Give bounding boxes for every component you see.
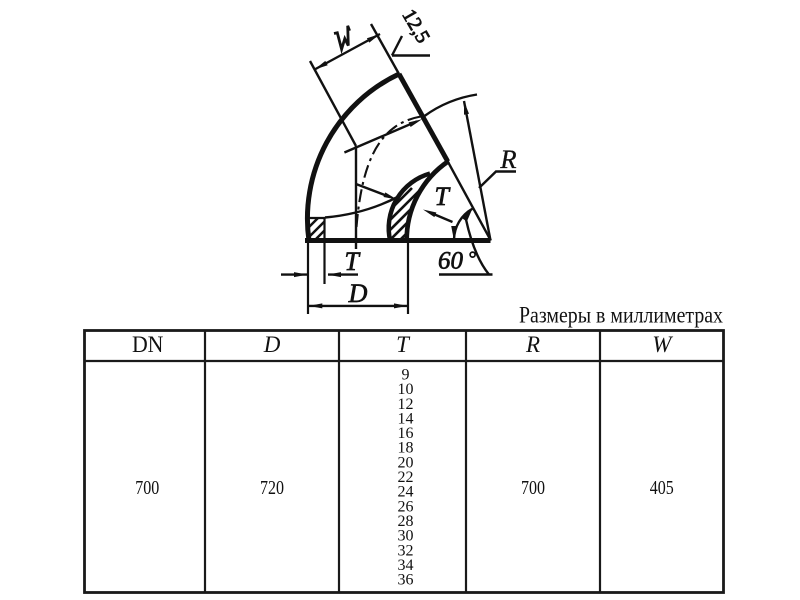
svg-text:D: D xyxy=(348,279,368,308)
svg-text:12,5: 12,5 xyxy=(397,6,434,47)
svg-text:T: T xyxy=(434,182,450,211)
svg-text:Размеры в миллиметрах: Размеры в миллиметрах xyxy=(519,303,723,328)
svg-text:720: 720 xyxy=(260,477,284,499)
svg-text:T: T xyxy=(396,332,411,357)
svg-text:405: 405 xyxy=(650,477,674,499)
svg-text:700: 700 xyxy=(521,477,545,499)
svg-text:D: D xyxy=(263,332,281,357)
svg-text:W: W xyxy=(652,332,673,357)
svg-text:700: 700 xyxy=(135,477,159,499)
svg-text:DN: DN xyxy=(132,332,164,358)
svg-text:T: T xyxy=(344,247,360,276)
svg-text:60: 60 xyxy=(438,248,464,275)
svg-text:36: 36 xyxy=(398,572,414,589)
svg-text:R: R xyxy=(499,144,516,174)
svg-text:R: R xyxy=(525,332,540,357)
